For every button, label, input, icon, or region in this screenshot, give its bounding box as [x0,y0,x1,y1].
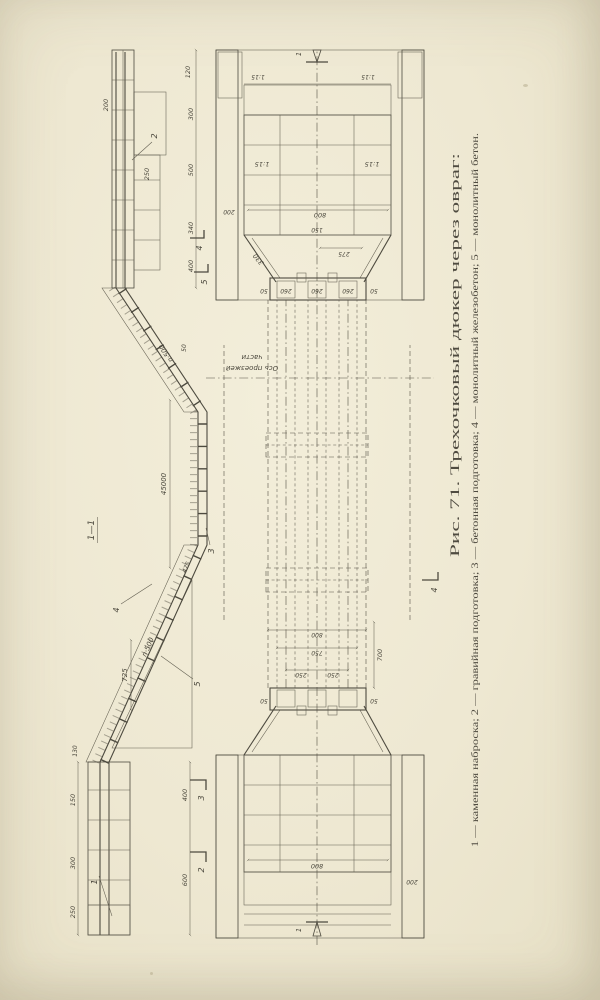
ground-stipple [96,288,194,762]
pipe-top-line [100,52,198,935]
dim-label: 725 [121,668,129,682]
dim-label: 400 [181,789,189,801]
section-mark-2: 2 [197,867,206,872]
outlet-headwall-plan: 800 150 200 330 275 260 260 260 50 50 1:… [216,50,424,300]
slope-label: 1:15 [365,160,380,168]
dim-label: 300 [69,857,77,869]
section-mark-1: 1 [295,52,303,56]
slope-label: 1:15 [361,73,375,80]
road-axis-label: Ось проезжей [225,364,278,372]
dim-label: 200 [223,208,235,215]
dim-label: 50 [370,697,378,704]
dim-label: 600 [181,874,189,886]
inlet-headwall-profile [88,762,130,935]
dim-label: 260 [280,287,292,294]
figure-caption: Рис. 71. Трехочковый дюкер через овраг: … [447,133,481,847]
slope-label: 1:15 [251,73,265,80]
dim-label: n·500 [140,636,156,658]
section-mark-4: 4 [195,245,204,250]
dim-label: 200 [102,99,110,111]
dim-label: 500 [187,164,195,176]
pipe-joints [105,288,203,762]
section-mark-1: 1 [295,928,303,932]
section-mark-3: 3 [197,795,206,800]
culvert-drawing: 1—1 [0,0,600,1000]
road-axis-label: части [241,353,262,361]
scanned-book-page: 1—1 [0,0,600,1000]
figure-title: Рис. 71. Трехочковый дюкер через овраг: [447,153,462,557]
dim-label: 250 [143,168,151,180]
rotated-figure: 1—1 [0,0,600,1000]
section-mark-5: 5 [200,279,209,284]
leader-number: 2 [150,133,159,138]
dim-label: 50 [260,697,268,704]
dim-label: n·500 [157,342,175,364]
pipe-dashed-lines [268,50,366,945]
dim-label: 800 [314,211,326,219]
section-1-1-label: 1—1 [87,520,97,540]
inlet-headwall-plan: 800 200 50 50 250 250 750 800 700 [216,622,424,938]
dim-label: 150 [69,794,77,806]
leader-number: 3 [207,548,216,553]
slope-label: 1:15 [255,160,270,168]
dim-label: 340 [187,222,195,234]
pipe-bottom-line [109,52,207,935]
dim-label: 275 [338,250,350,257]
dim-label: 250 [327,671,339,678]
dim-label: 120 [184,66,192,78]
leader-number: 4 [112,607,121,612]
outlet-headwall-profile [112,50,160,288]
dim-label: 800 [311,631,323,638]
dim-label: 50 [260,287,268,294]
dim-label: 45000 [160,472,168,495]
dim-label: 50 [370,287,378,294]
dim-label: 400 [187,260,195,272]
leader-number: 1 [90,879,99,884]
dim-label: 200 [406,878,418,885]
leader-number: 5 [193,681,202,686]
dim-label: 250 [69,906,77,918]
figure-legend: 1 — каменная наброска; 2 — гравийная под… [470,133,481,847]
dim-label: 130 [72,745,79,757]
longitudinal-section-view: 1—1 [69,50,216,935]
plan-view: 800 150 200 330 275 260 260 260 50 50 1:… [190,50,439,945]
dim-label: 50 [181,344,188,352]
dim-label: 700 [376,649,384,661]
dim-label: 250 [295,671,307,678]
road-axis: Ось проезжей части [206,353,434,378]
dim-label: 300 [187,108,195,120]
dim-label: 260 [342,287,354,294]
stone-block-outlet [134,92,166,155]
section-mark-4b: 4 [430,587,439,592]
